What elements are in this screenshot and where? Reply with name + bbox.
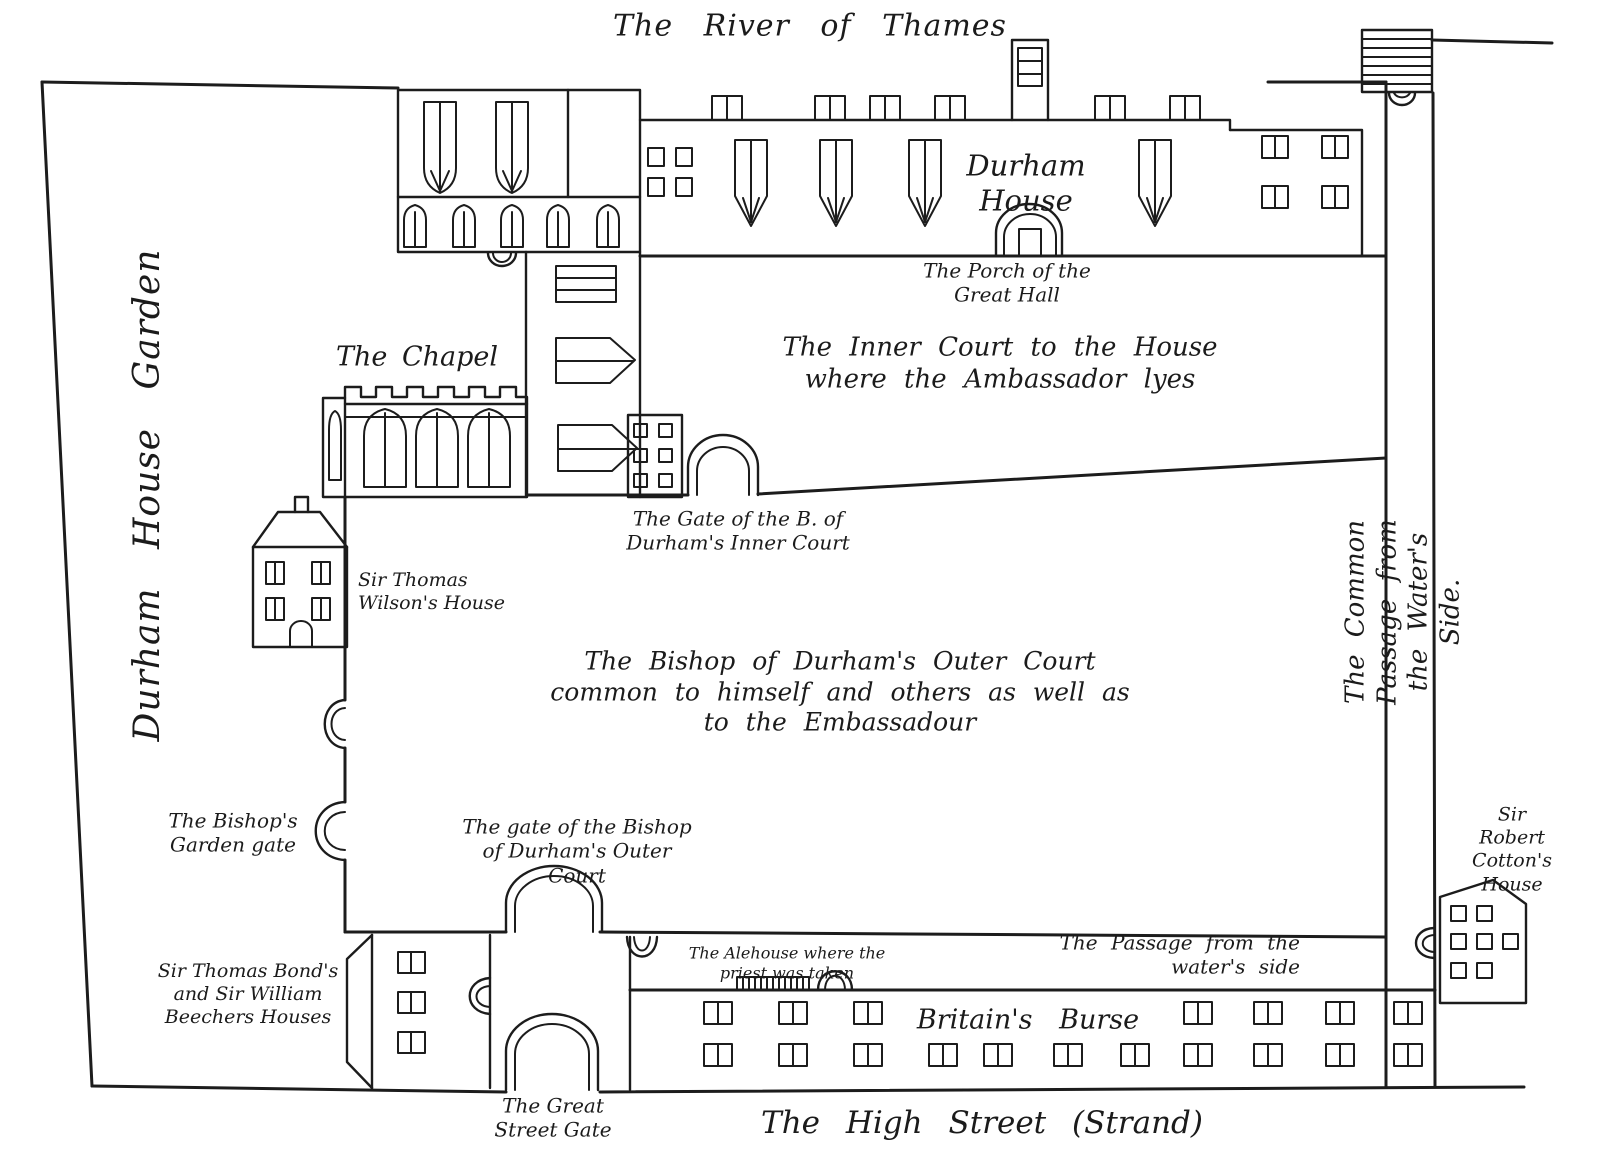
label-common-passage: The Common Passage from the Water's Side…	[1341, 514, 1468, 710]
riverfront-west-building	[398, 90, 640, 266]
label-great-street-gate: The Great Street Gate	[494, 1094, 611, 1143]
label-durham-house-garden: Durham House Garden	[126, 249, 170, 742]
wilson-house-building	[253, 497, 347, 647]
inner-court-gate-arch	[688, 435, 758, 495]
great-street-gate-arch	[506, 1014, 598, 1090]
bond-beecher-houses	[347, 935, 490, 1088]
label-river-of-thames: The River of Thames	[613, 9, 1007, 46]
label-alehouse: The Alehouse where the priest was taken	[689, 943, 886, 982]
label-porch-of-great-hall: The Porch of the Great Hall	[923, 259, 1091, 308]
east-wing-building	[1230, 130, 1362, 256]
stair-tower	[526, 252, 640, 497]
cotton-house-building	[1416, 880, 1526, 1003]
label-outer-court-gate: The gate of the Bishop of Durham's Outer…	[462, 814, 691, 887]
label-high-street-strand: The High Street (Strand)	[761, 1105, 1203, 1143]
label-wilson-house: Sir Thomas Wilson's House	[358, 569, 505, 615]
water-stairs	[1362, 30, 1432, 105]
label-bishops-garden-gate: The Bishop's Garden gate	[168, 809, 297, 858]
label-inner-court-gate: The Gate of the B. of Durham's Inner Cou…	[626, 507, 850, 556]
label-inner-court: The Inner Court to the House where the A…	[782, 332, 1217, 395]
label-bond-beecher-houses: Sir Thomas Bond's and Sir William Beeche…	[158, 960, 338, 1030]
label-outer-court: The Bishop of Durham's Outer Court commo…	[550, 646, 1129, 738]
label-britains-burse: Britain's Burse	[917, 1005, 1139, 1038]
durham-house-plan: The River of Thames Durham House Garden …	[0, 0, 1600, 1175]
gatehouse-building	[628, 415, 682, 497]
chapel-building	[323, 387, 527, 497]
label-chapel: The Chapel	[336, 342, 498, 375]
garden-gate-arch	[316, 802, 345, 860]
label-passage-from-waters-side: The Passage from the water's side	[990, 931, 1300, 980]
label-cotton-house: Sir Robert Cotton's House	[1468, 804, 1556, 897]
durham-house-building	[640, 96, 1230, 226]
label-durham-house: Durham House	[966, 149, 1085, 220]
